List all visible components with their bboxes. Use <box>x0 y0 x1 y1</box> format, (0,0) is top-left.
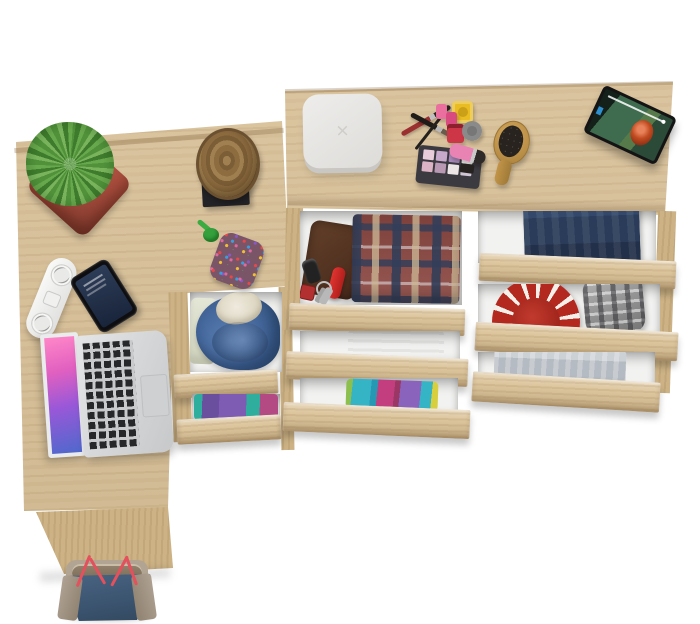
pouch-cord-knot <box>203 228 219 242</box>
red-key-fob <box>300 284 316 302</box>
hoodie-fold <box>212 322 268 362</box>
palette-shade-5 <box>421 161 433 172</box>
palette-shade-1 <box>423 149 435 160</box>
middle-drawer-1-interior <box>300 211 462 305</box>
pedestal-drawer-2-front <box>176 414 281 444</box>
nail-polish-yellow-cap <box>458 107 468 117</box>
palette-shade-6 <box>434 163 446 174</box>
scene: × <box>0 0 700 624</box>
plant-foliage-shading <box>26 122 114 206</box>
palette-shade-7 <box>447 164 459 175</box>
tablet-progress-dot <box>661 119 666 124</box>
cosmetic-jar <box>462 121 482 141</box>
cosmetic-black-small <box>459 163 474 174</box>
laptop-keyboard <box>83 340 140 449</box>
white-storage-box: × <box>302 93 382 168</box>
white-box-mark: × <box>335 121 350 141</box>
palette-shade-2 <box>436 151 448 162</box>
movie-character-hair <box>626 116 657 149</box>
laptop <box>40 322 175 462</box>
hairbrush-handle <box>493 158 513 187</box>
plaid-shirt <box>351 214 461 304</box>
stump-log <box>196 128 260 200</box>
tablet-blue-icon <box>596 106 604 115</box>
laptop-trackpad <box>140 374 170 418</box>
tote-bag <box>58 554 156 624</box>
pedestal-drawer-1-interior <box>190 292 282 372</box>
